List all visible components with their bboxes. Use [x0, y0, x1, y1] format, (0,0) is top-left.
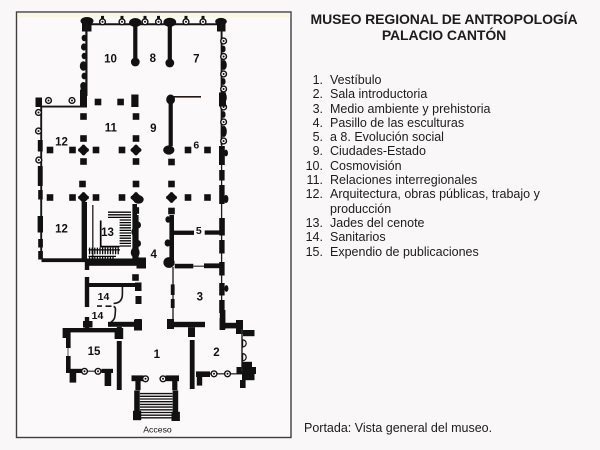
- svg-text:12: 12: [55, 137, 68, 149]
- svg-text:9: 9: [150, 123, 156, 135]
- svg-text:7: 7: [193, 54, 199, 66]
- svg-text:11: 11: [105, 123, 118, 135]
- svg-text:4: 4: [150, 249, 157, 261]
- svg-text:2: 2: [213, 347, 219, 359]
- svg-text:12: 12: [55, 224, 68, 236]
- svg-text:Acceso: Acceso: [143, 424, 172, 434]
- svg-text:15: 15: [88, 346, 101, 358]
- svg-text:13: 13: [101, 227, 114, 239]
- svg-text:14: 14: [92, 310, 104, 322]
- svg-text:8: 8: [150, 53, 157, 65]
- svg-text:14: 14: [98, 291, 110, 303]
- svg-text:6: 6: [193, 140, 199, 152]
- svg-text:1: 1: [154, 349, 161, 361]
- svg-text:10: 10: [104, 54, 117, 66]
- svg-text:3: 3: [197, 292, 203, 304]
- svg-text:5: 5: [196, 225, 202, 237]
